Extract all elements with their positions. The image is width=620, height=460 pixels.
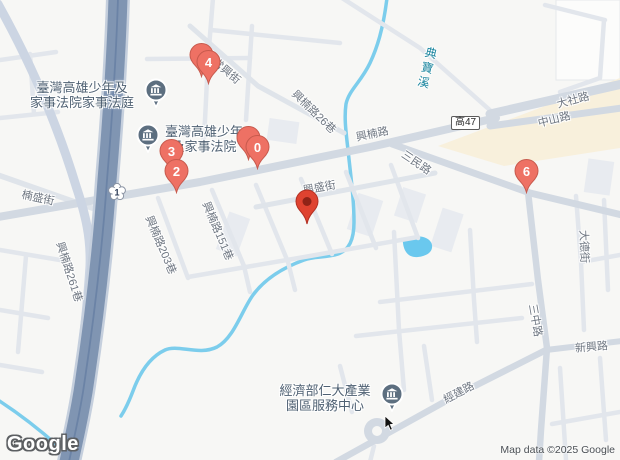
government-building-icon[interactable]: [379, 382, 405, 412]
poi-label-line: 園區服務中心: [272, 398, 378, 413]
svg-text:0: 0: [254, 140, 261, 155]
map-marker-4[interactable]: 4: [195, 49, 222, 85]
mouse-cursor-icon: [384, 416, 398, 432]
poi-label-industry-service-center[interactable]: 經濟部仁大產業 園區服務中心: [272, 383, 378, 413]
svg-text:1: 1: [114, 187, 119, 197]
road-label-xinxing-rd: 新興路: [574, 337, 608, 356]
map-marker-6[interactable]: 6: [513, 158, 540, 194]
google-logo[interactable]: Google: [7, 433, 79, 456]
map-marker-2[interactable]: 2: [163, 158, 190, 194]
poi-label-line: 臺灣高雄少年及: [22, 80, 142, 95]
map-pin-selected[interactable]: [292, 188, 322, 228]
map-attribution: Map data ©2025 Google: [500, 444, 615, 456]
courthouse-icon[interactable]: [143, 78, 169, 108]
road-label-dade-st: 大德街: [576, 230, 593, 264]
route-shield-county-47: 高47: [451, 116, 480, 130]
svg-text:6: 6: [523, 164, 530, 179]
poi-label-line: 經濟部仁大產業: [272, 383, 378, 398]
route-shield-national-1-icon: 1: [108, 183, 126, 201]
svg-text:2: 2: [173, 164, 180, 179]
map-marker-0[interactable]: 0: [244, 134, 271, 170]
map-canvas[interactable]: 楠盛街 常興街 興楠路26巷 興楠路 大社路 中山路 三民路 興盛街 興楠路15…: [0, 0, 620, 460]
poi-label-family-court-annex[interactable]: 臺灣高雄少年及 家事法院家事法庭: [22, 80, 142, 110]
svg-text:4: 4: [205, 55, 213, 70]
poi-label-line: 家事法院家事法庭: [22, 95, 142, 110]
svg-text:3: 3: [168, 144, 175, 159]
